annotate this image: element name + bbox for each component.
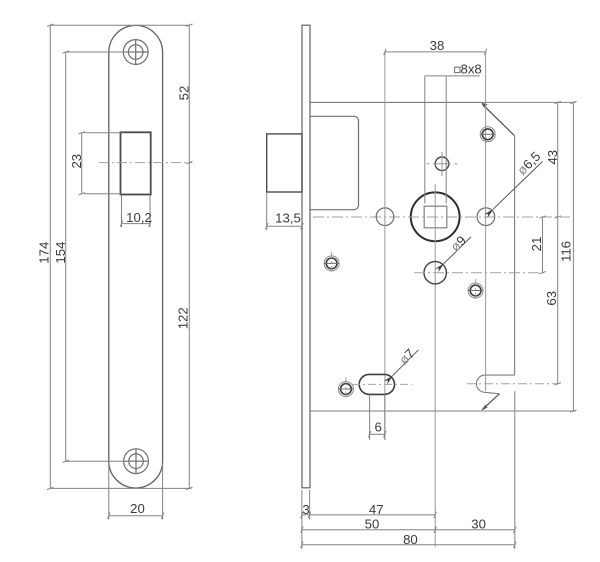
svg-text:154: 154 — [53, 242, 68, 264]
svg-text:20: 20 — [130, 501, 145, 516]
svg-text:ø6,5: ø6,5 — [514, 149, 543, 178]
svg-text:50: 50 — [365, 516, 380, 531]
svg-text:47: 47 — [369, 502, 384, 517]
svg-text:10,2: 10,2 — [126, 210, 152, 225]
svg-text:21: 21 — [529, 237, 544, 252]
svg-text:38: 38 — [430, 38, 445, 53]
svg-text:23: 23 — [69, 154, 84, 169]
svg-text:3: 3 — [302, 502, 309, 517]
svg-text:63: 63 — [544, 291, 559, 306]
svg-text:116: 116 — [559, 241, 574, 262]
svg-text:43: 43 — [545, 150, 560, 165]
svg-text:122: 122 — [176, 307, 191, 329]
svg-text:30: 30 — [471, 516, 486, 531]
svg-text:52: 52 — [177, 86, 192, 101]
svg-text:8x8: 8x8 — [461, 62, 482, 77]
svg-text:174: 174 — [36, 242, 51, 264]
svg-text:ø7: ø7 — [396, 346, 418, 368]
svg-text:13,5: 13,5 — [275, 211, 301, 226]
svg-text:80: 80 — [403, 532, 418, 547]
svg-text:6: 6 — [375, 420, 382, 435]
